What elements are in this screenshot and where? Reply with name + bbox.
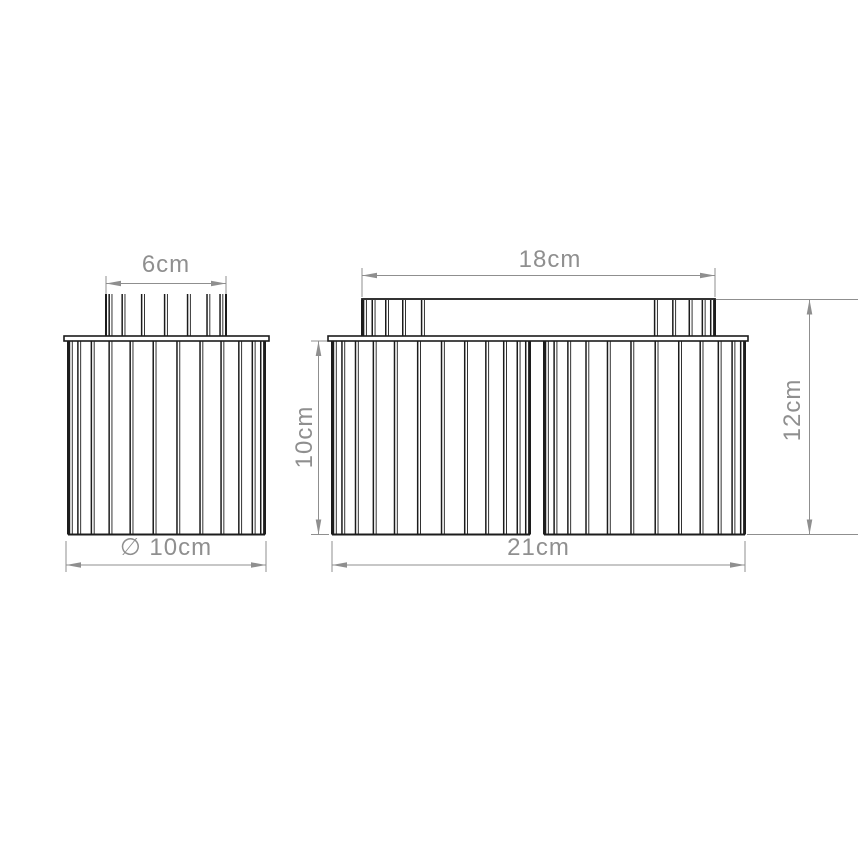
drawing-canvas: 6cm ∅ 10cm 18cm 10cm 12cm 21cm [0, 0, 868, 868]
dim-label-total-width-right: 21cm [332, 535, 745, 561]
dim-label-total-height-right: 12cm [780, 370, 806, 450]
dim-label-shade-height-right: 10cm [292, 397, 318, 477]
right-fixture-double-shade [328, 299, 748, 535]
dim-label-top-width-left: 6cm [106, 252, 226, 278]
dim-label-diameter-left: ∅ 10cm [66, 535, 266, 561]
dim-label-bar-width-right: 18cm [368, 247, 732, 273]
technical-drawing [0, 0, 868, 868]
left-fixture-single-shade [64, 294, 269, 535]
